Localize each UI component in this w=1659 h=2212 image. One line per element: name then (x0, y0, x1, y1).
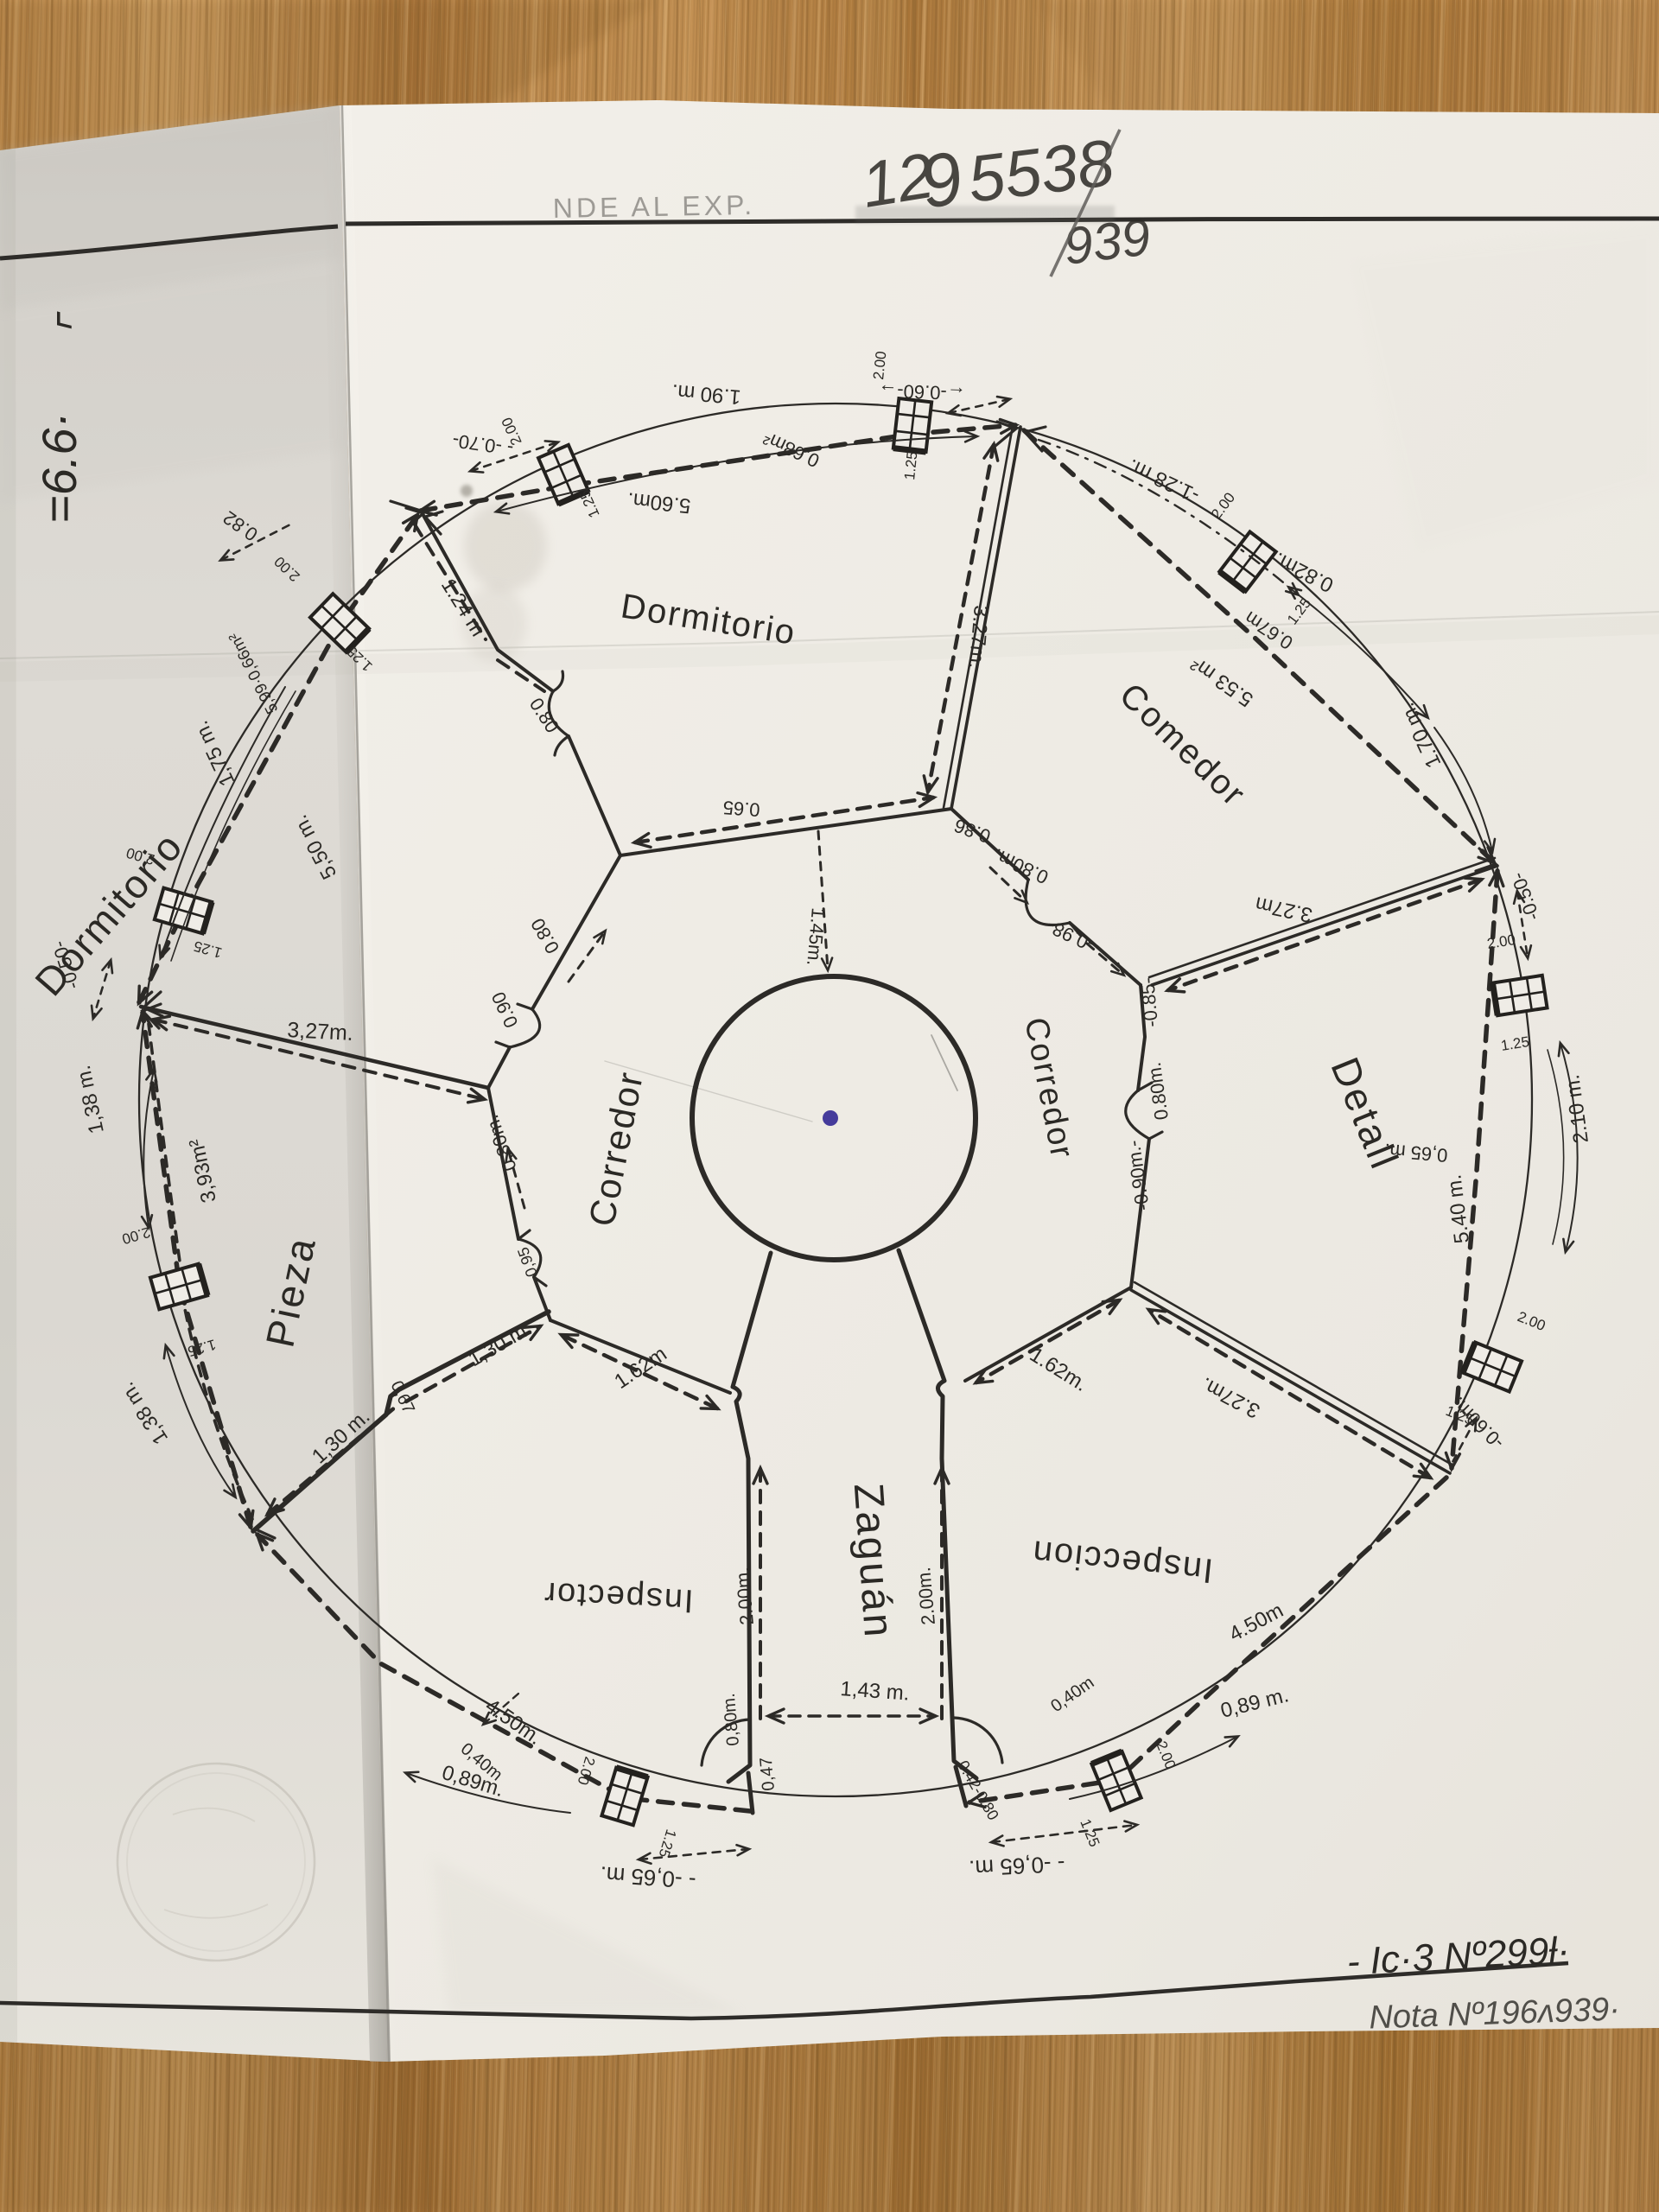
svg-text:1,43 m.: 1,43 m. (840, 1677, 911, 1706)
svg-text:0.65: 0.65 (722, 797, 760, 821)
svg-text:-0.85-: -0.85- (1136, 976, 1162, 1027)
svg-text:2.00: 2.00 (870, 351, 889, 381)
svg-text:939: 939 (1060, 207, 1154, 276)
svg-text:1.25: 1.25 (901, 451, 920, 481)
svg-text:3,27m.: 3,27m. (287, 1018, 354, 1046)
svg-text:- -0,65 m.: - -0,65 m. (969, 1851, 1066, 1882)
svg-text:=6.6·: =6.6· (32, 412, 86, 524)
svg-text:NDE AL EXP.: NDE AL EXP. (552, 189, 755, 224)
svg-text:0,47: 0,47 (757, 1757, 779, 1792)
svg-text:←-0.60-→: ←-0.60-→ (878, 379, 966, 404)
